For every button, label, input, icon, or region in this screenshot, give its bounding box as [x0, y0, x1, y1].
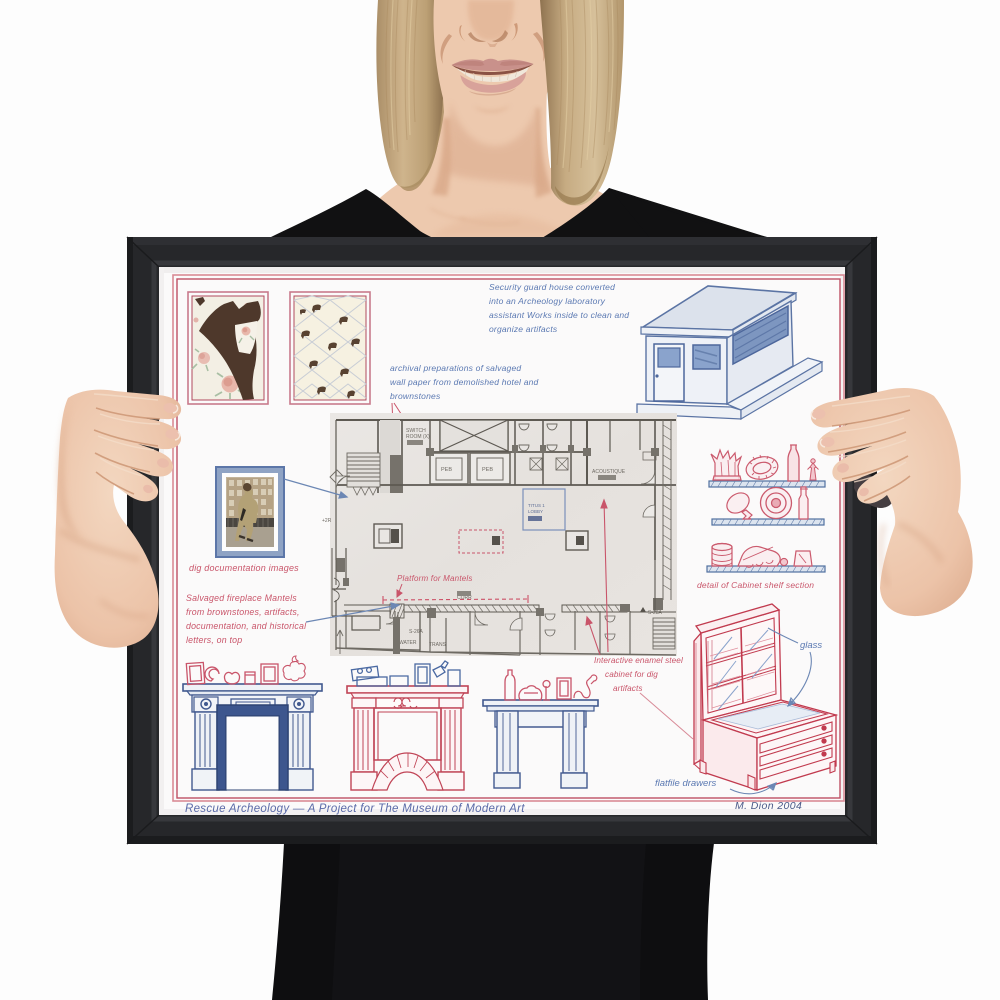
svg-text:detail of Cabinet shelf sectio: detail of Cabinet shelf section	[697, 580, 814, 590]
svg-text:Platform for Mantels: Platform for Mantels	[397, 574, 473, 583]
svg-text:brownstones: brownstones	[390, 391, 441, 401]
svg-text:ROOM (X): ROOM (X)	[406, 434, 430, 440]
svg-text:letters, on top: letters, on top	[186, 635, 242, 645]
svg-text:WATER: WATER	[399, 640, 417, 646]
svg-text:TRANS: TRANS	[429, 642, 447, 648]
svg-text:S-26A: S-26A	[409, 629, 424, 635]
svg-text:artifacts: artifacts	[613, 684, 643, 693]
svg-text:dig documentation images: dig documentation images	[189, 563, 299, 573]
svg-text:wall paper from demolished hot: wall paper from demolished hotel and	[390, 377, 539, 387]
svg-text:PEB: PEB	[482, 467, 493, 473]
svg-text:assistant Works inside to clea: assistant Works inside to clean and	[489, 310, 629, 320]
svg-text:flatfile drawers: flatfile drawers	[655, 778, 716, 789]
svg-text:archival preparations of salva: archival preparations of salvaged	[390, 363, 521, 373]
svg-text:Salvaged fireplace Mantels: Salvaged fireplace Mantels	[186, 593, 297, 603]
svg-text:into an Archeology laboratory: into an Archeology laboratory	[489, 296, 606, 306]
svg-text:PEB: PEB	[441, 467, 452, 473]
svg-text:Rescue Archeology — A Project: Rescue Archeology — A Project for The Mu…	[185, 803, 525, 815]
svg-text:ACOUSTIQUE: ACOUSTIQUE	[592, 469, 626, 475]
svg-text:+2R: +2R	[322, 518, 332, 524]
svg-text:from brownstones, artifacts,: from brownstones, artifacts,	[186, 607, 300, 617]
svg-text:glass: glass	[800, 640, 822, 651]
svg-text:organize artifacts: organize artifacts	[489, 324, 558, 334]
svg-text:documentation, and historical: documentation, and historical	[186, 621, 307, 631]
svg-text:LOBBY: LOBBY	[528, 509, 543, 514]
svg-text:Interactive enamel steel: Interactive enamel steel	[594, 656, 683, 665]
svg-text:M. Dion 2004: M. Dion 2004	[735, 800, 802, 812]
svg-text:cabinet for dig: cabinet for dig	[605, 670, 658, 679]
svg-text:Security guard house converted: Security guard house converted	[489, 282, 615, 292]
svg-text:TITUS 1: TITUS 1	[528, 503, 545, 508]
